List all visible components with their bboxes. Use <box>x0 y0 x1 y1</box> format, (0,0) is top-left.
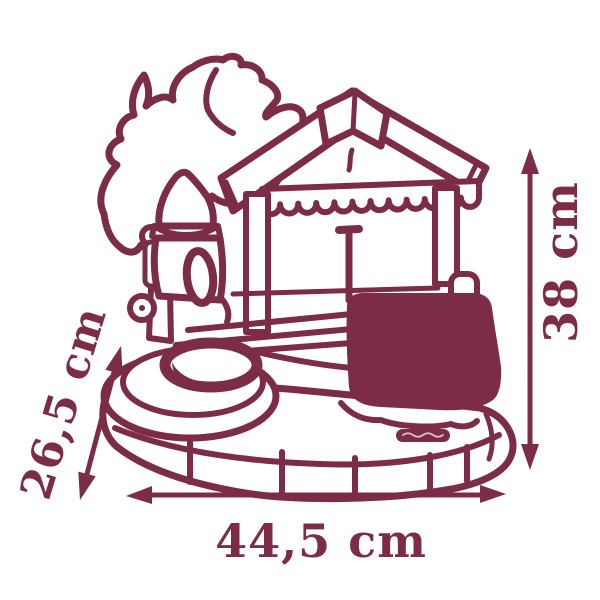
width-dimension-label: 44,5 cm <box>215 514 427 568</box>
dimension-diagram: 44,5 cm 38 cm 26,5 cm <box>0 0 600 600</box>
height-dimension-label: 38 cm <box>534 181 588 343</box>
brand-plaque <box>396 429 450 442</box>
playset-line-art <box>0 0 600 600</box>
